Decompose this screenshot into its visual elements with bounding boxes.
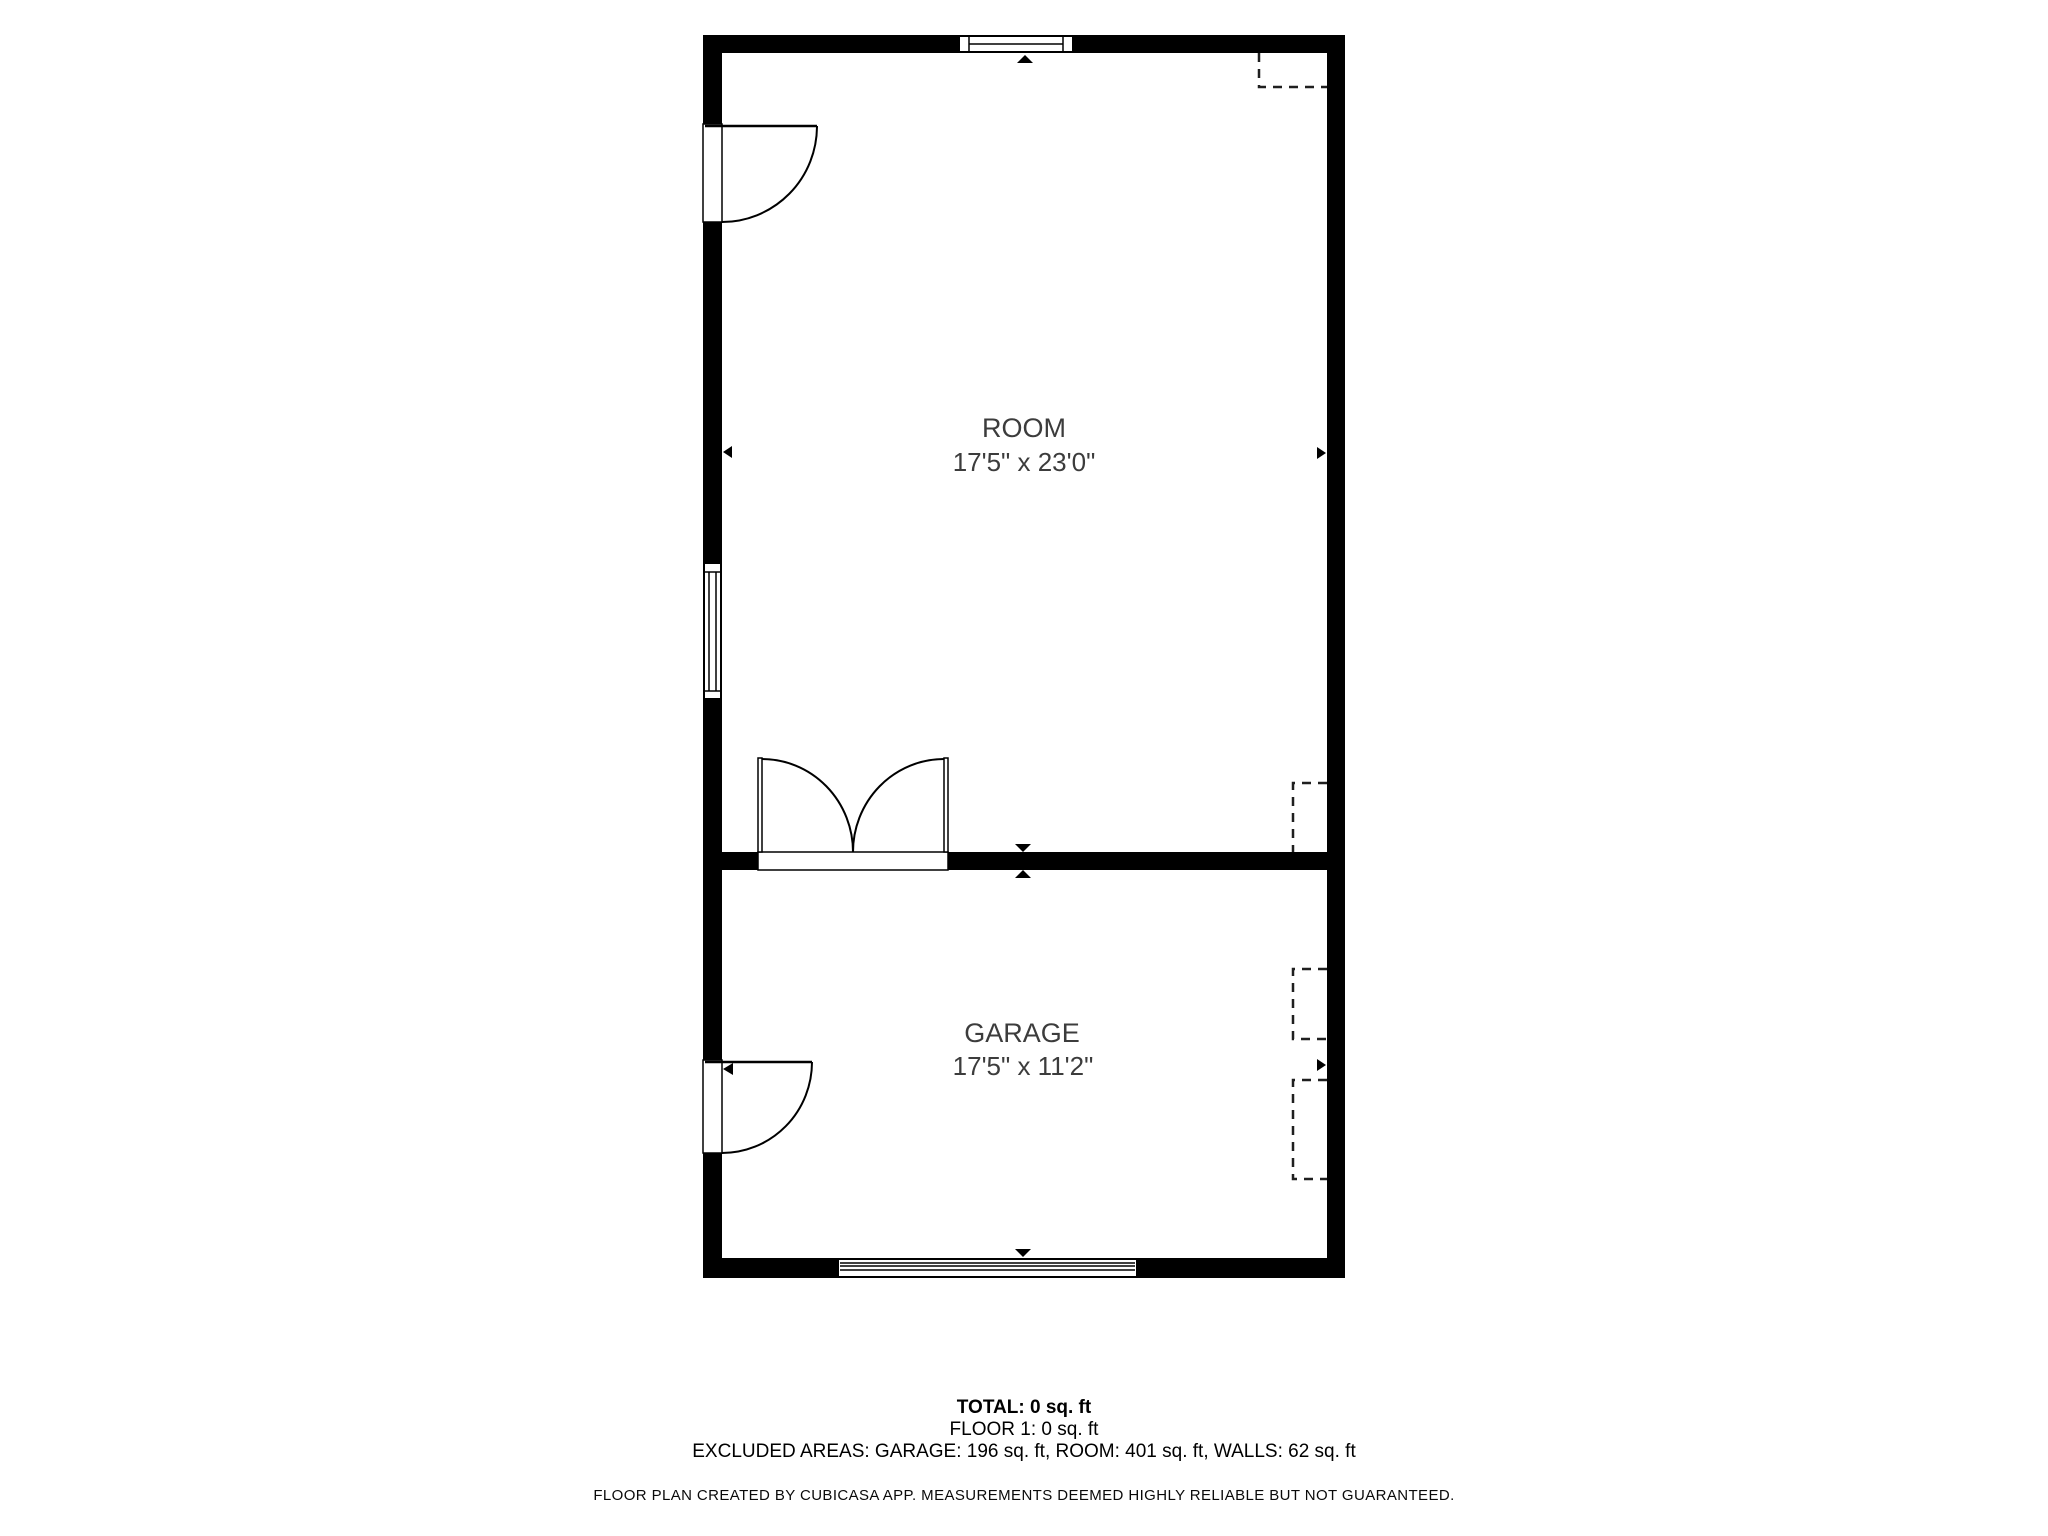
direction-marker-room-right-icon xyxy=(1317,447,1326,459)
dashed-feature-garage-upper-right xyxy=(1293,969,1327,1039)
dashed-feature-top-right xyxy=(1259,53,1327,87)
top-window xyxy=(959,36,1073,63)
double-door-swing-arc-left xyxy=(762,759,853,852)
room-door-jamb xyxy=(703,124,722,222)
measurement-summary: TOTAL: 0 sq. ft FLOOR 1: 0 sq. ft EXCLUD… xyxy=(0,1397,2048,1504)
floorplan-page: ROOM 17'5" x 23'0" GARAGE 17'5" x 11'2" … xyxy=(0,0,2048,1536)
direction-marker-middle-top-icon xyxy=(1015,844,1031,852)
direction-marker-middle-bottom-icon xyxy=(1015,870,1031,878)
room-dimensions: 17'5" x 23'0" xyxy=(953,447,1096,477)
garage-label: GARAGE xyxy=(964,1018,1080,1048)
direction-marker-garage-right-icon xyxy=(1317,1059,1326,1071)
summary-floor: FLOOR 1: 0 sq. ft xyxy=(0,1419,2048,1441)
summary-disclaimer: FLOOR PLAN CREATED BY CUBICASA APP. MEAS… xyxy=(0,1487,2048,1504)
room-label: ROOM xyxy=(982,413,1066,443)
direction-marker-garage-overhead-icon xyxy=(1015,1249,1031,1257)
garage-door-swing-arc xyxy=(722,1062,812,1153)
side-markers xyxy=(723,446,1326,1071)
garage-overhead-door-frame xyxy=(838,1259,1137,1277)
dashed-feature-room-bottom-right xyxy=(1293,783,1327,852)
dashed-features xyxy=(1259,53,1327,1179)
floorplan-drawing: ROOM 17'5" x 23'0" GARAGE 17'5" x 11'2" xyxy=(0,0,2048,1536)
summary-total: TOTAL: 0 sq. ft xyxy=(0,1397,2048,1419)
double-door-leaf-right xyxy=(944,758,948,852)
walls xyxy=(703,35,1345,1278)
room-window-frame xyxy=(704,563,721,699)
double-door-jamb xyxy=(758,852,948,870)
direction-marker-room-left-icon xyxy=(723,446,732,458)
direction-marker-garage-door-icon xyxy=(723,1063,733,1075)
room-window xyxy=(704,563,721,699)
garage-door xyxy=(703,1060,812,1153)
room-door-swing-arc xyxy=(722,126,817,222)
garage-dimensions: 17'5" x 11'2" xyxy=(953,1051,1094,1081)
summary-excluded: EXCLUDED AREAS: GARAGE: 196 sq. ft, ROOM… xyxy=(0,1441,2048,1463)
double-door-leaf-left xyxy=(758,758,762,852)
garage-overhead-door xyxy=(838,1249,1137,1277)
room-door xyxy=(703,124,817,222)
wall-right xyxy=(1327,35,1345,1278)
double-door-swing-arc-right xyxy=(853,759,944,852)
garage-door-jamb xyxy=(703,1060,722,1153)
dashed-feature-garage-lower-right xyxy=(1293,1080,1327,1179)
direction-marker-top-window-icon xyxy=(1017,55,1033,63)
